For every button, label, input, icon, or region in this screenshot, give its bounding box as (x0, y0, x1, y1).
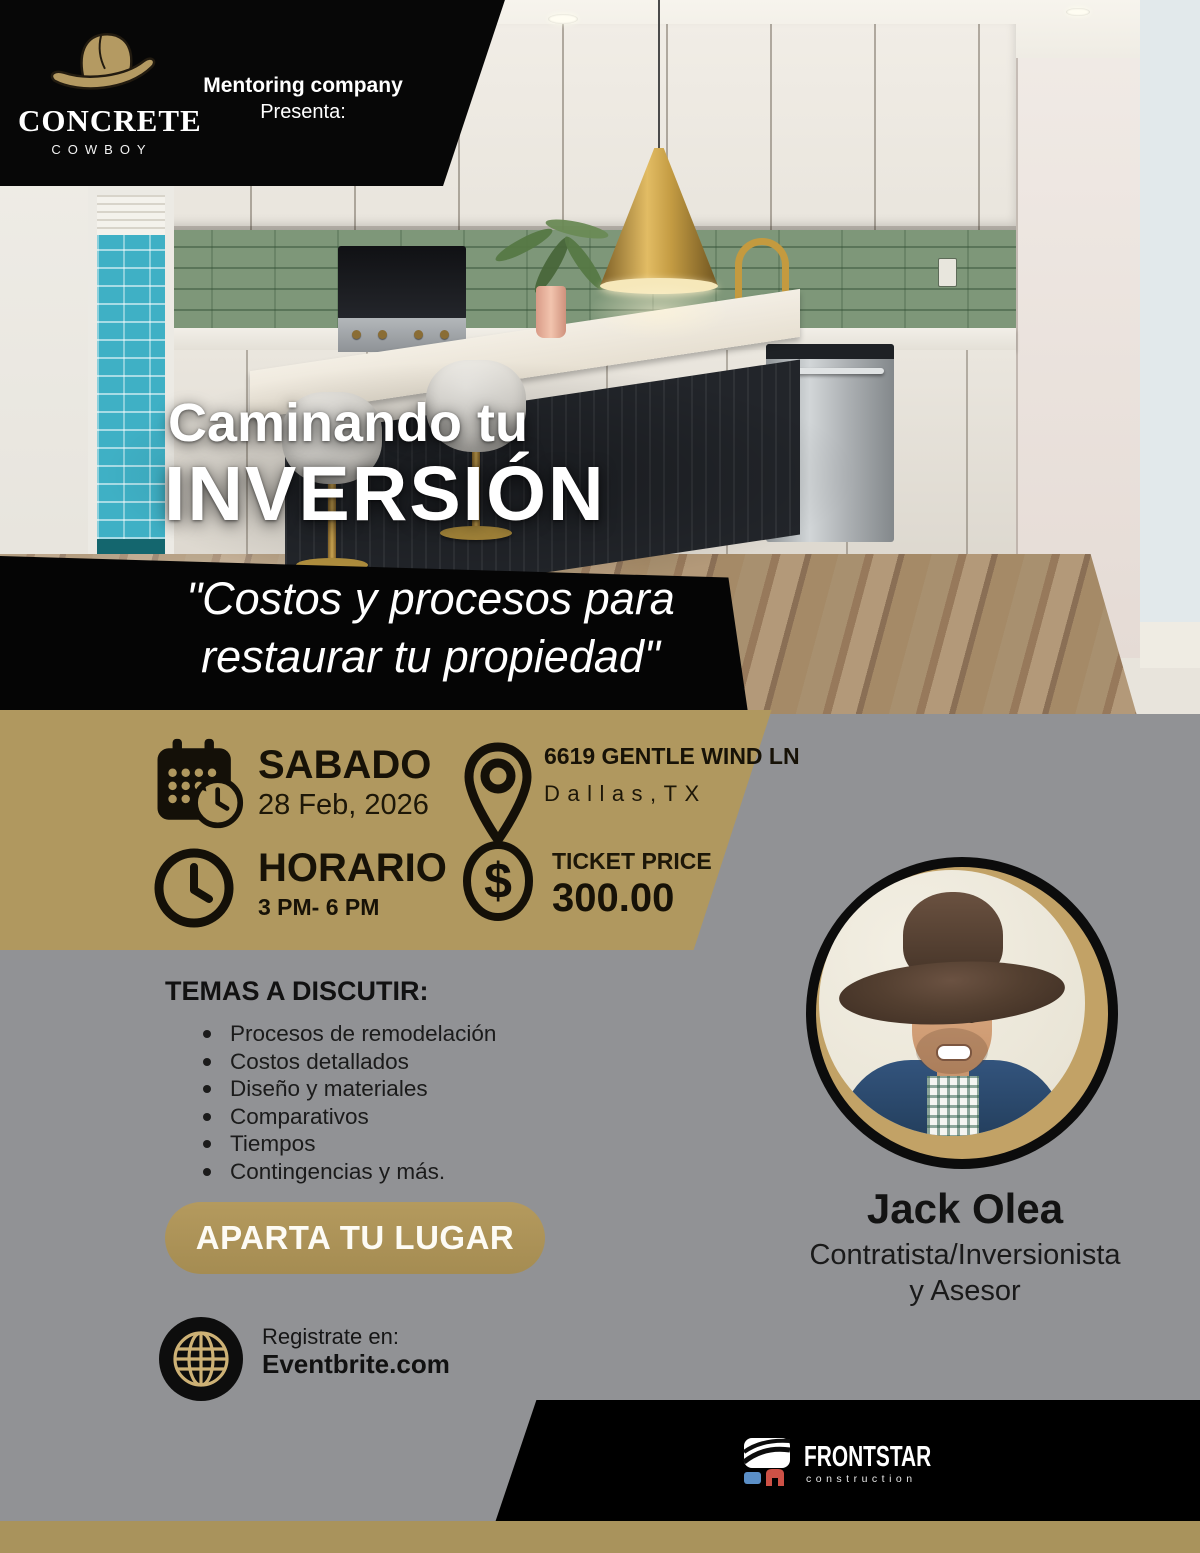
reserve-spot-button-label: APARTA TU LUGAR (196, 1219, 515, 1257)
presenter-line2: Presenta: (188, 101, 418, 124)
photo-range (338, 246, 466, 320)
photo-door-blinds (97, 195, 165, 235)
date-label: SABADO (258, 745, 431, 785)
speaker-portrait (806, 857, 1118, 1169)
price-label: TICKET PRICE (552, 848, 712, 875)
presenter-line1: Mentoring company (188, 74, 418, 98)
location-block: 6619 GENTLE WIND LN Dallas,TX (544, 743, 800, 807)
photo-right-wall (1140, 0, 1200, 668)
bottom-gold-strip (0, 1521, 1200, 1553)
hero-title-line1: Caminando tu (168, 392, 528, 454)
price-block: TICKET PRICE 300.00 (552, 848, 712, 921)
date-block: SABADO 28 Feb, 2026 (258, 745, 431, 822)
cowboy-hat-icon (44, 26, 162, 102)
globe-icon (158, 1316, 244, 1402)
location-line1: 6619 GENTLE WIND LN (544, 743, 800, 770)
location-line2: Dallas,TX (544, 781, 800, 807)
dollar-icon: $ (460, 840, 536, 922)
photo-range-knob (378, 330, 387, 339)
photo-plant-vase (536, 286, 566, 338)
topic-item: Tiempos (200, 1130, 620, 1158)
photo-range-knob (440, 330, 449, 339)
frontstar-mark-icon (742, 1436, 796, 1488)
brand-subtitle: COWBOY (18, 142, 186, 157)
photo-range-knob (414, 330, 423, 339)
pendant-light-wire (658, 0, 660, 150)
topic-item: Costos detallados (200, 1048, 620, 1076)
recessed-light-icon (1066, 8, 1090, 16)
photo-dishwasher-panel (766, 344, 894, 359)
photo-baseboard (1140, 622, 1200, 668)
quote-text: "Costos y procesos para restaurar tu pro… (118, 570, 743, 685)
presenter-block: Mentoring company Presenta: (188, 74, 418, 124)
topic-item: Contingencias y más. (200, 1158, 620, 1186)
price-value: 300.00 (552, 876, 712, 921)
brand-block: CONCRETE COWBOY (18, 103, 186, 157)
footer-logo-text: FRONTSTAR (804, 1441, 931, 1474)
pendant-light-glow (588, 282, 730, 340)
quote-line1: "Costos y procesos para (118, 570, 743, 628)
footer-band (0, 1400, 1200, 1521)
schedule-block: HORARIO 3 PM- 6 PM (258, 848, 447, 921)
hero-title-line2: INVERSIÓN (164, 450, 606, 539)
photo-range-knob (352, 330, 361, 339)
portrait-photo (819, 870, 1085, 1136)
speaker-name: Jack Olea (770, 1185, 1160, 1233)
reserve-spot-button[interactable]: APARTA TU LUGAR (165, 1202, 545, 1274)
topic-item: Diseño y materiales (200, 1075, 620, 1103)
speaker-checkered-shirt (927, 1076, 979, 1136)
topic-item: Comparativos (200, 1103, 620, 1131)
footer-logo-subtext: construction (806, 1473, 917, 1485)
clock-icon (152, 846, 236, 930)
speaker-smile (936, 1044, 972, 1061)
speaker-role-line1: Contratista/Inversionista (760, 1239, 1170, 1272)
location-pin-icon (464, 742, 532, 848)
recessed-light-icon (548, 14, 578, 24)
topics-heading: TEMAS A DISCUTIR: (165, 976, 429, 1007)
speaker-hat-brim (838, 956, 1067, 1030)
date-value: 28 Feb, 2026 (258, 789, 431, 822)
schedule-value: 3 PM- 6 PM (258, 894, 447, 921)
calendar-clock-icon (150, 733, 244, 835)
photo-outlet (938, 258, 957, 287)
register-label: Registrate en: (262, 1324, 399, 1350)
event-flyer: Caminando tu INVERSIÓN "Costos y proceso… (0, 0, 1200, 1553)
quote-line2: restaurar tu propiedad" (118, 628, 743, 686)
brand-name: CONCRETE (18, 103, 186, 139)
schedule-label: HORARIO (258, 848, 447, 888)
topics-list: Procesos de remodelación Costos detallad… (200, 1020, 620, 1186)
topic-item: Procesos de remodelación (200, 1020, 620, 1048)
speaker-role-line2: y Asesor (770, 1275, 1160, 1308)
register-site-link[interactable]: Eventbrite.com (262, 1349, 450, 1380)
photo-green-backsplash (148, 230, 1016, 332)
svg-text:$: $ (484, 853, 512, 909)
